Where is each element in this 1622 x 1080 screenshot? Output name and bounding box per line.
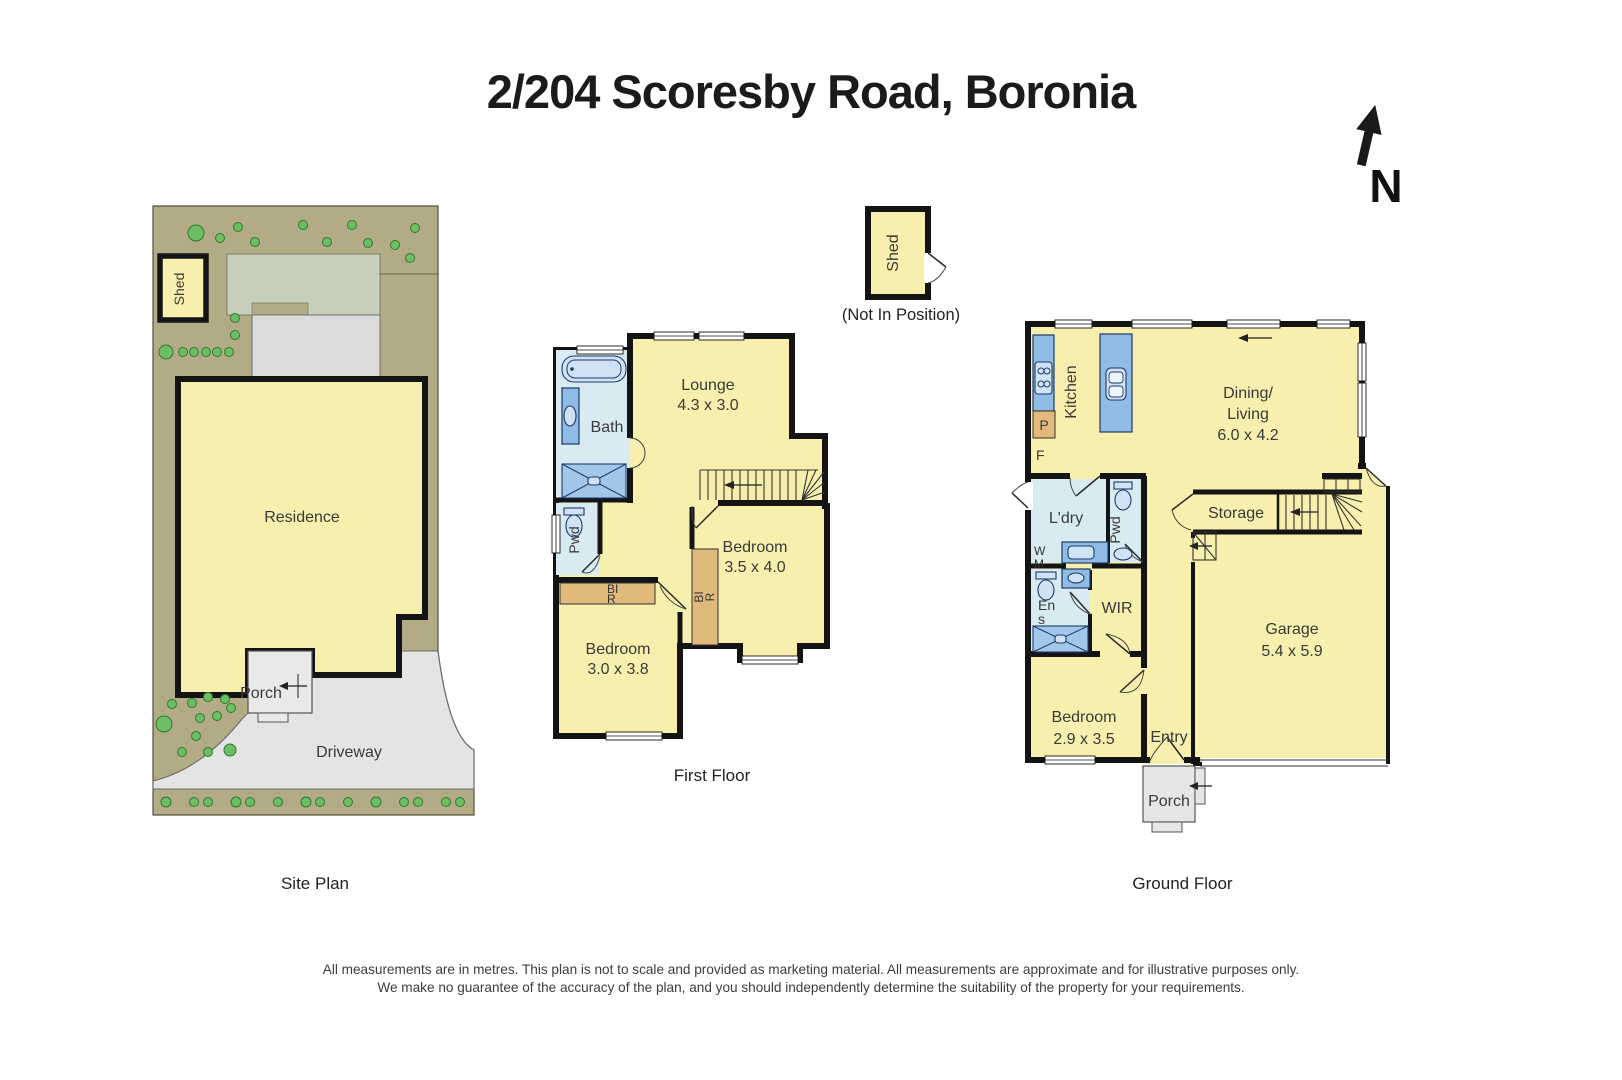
pantry-label: P <box>1039 417 1048 433</box>
disclaimer-line-2: We make no guarantee of the accuracy of … <box>0 979 1622 997</box>
site-porch-label: Porch <box>240 685 282 702</box>
dining-dim: 6.0 x 4.2 <box>1217 427 1278 444</box>
trough-icon <box>1068 546 1094 559</box>
bed-label-g: Bedroom <box>1052 709 1117 726</box>
bir-label-2: R <box>607 592 616 606</box>
shed-note: (Not In Position) <box>806 306 996 325</box>
driveway-label: Driveway <box>316 744 382 761</box>
garage-label: Garage <box>1265 621 1318 638</box>
site-plan-caption: Site Plan <box>152 874 478 894</box>
lounge-dim: 4.3 x 3.0 <box>677 397 738 414</box>
island-bench <box>1100 334 1132 432</box>
wm-label-1: W <box>1034 544 1046 558</box>
ground-floor-plan: P F <box>1000 316 1400 836</box>
shower-icon <box>562 464 626 498</box>
north-arrow: N <box>1330 98 1410 213</box>
fridge-label: F <box>1036 447 1045 463</box>
lounge-label: Lounge <box>681 377 734 394</box>
garden-notch <box>252 303 308 316</box>
first-floor-plan: BI R BI R Bath Pwd L <box>550 330 840 750</box>
kitchen-bench <box>1033 335 1054 411</box>
site-shed-label: Shed <box>171 273 187 306</box>
north-arrow-icon <box>1349 102 1388 168</box>
disclaimer: All measurements are in metres. This pla… <box>0 961 1622 997</box>
pwd-label: Pwd <box>566 526 582 553</box>
pantry: P <box>1033 411 1055 438</box>
ens-label-2: s <box>1038 611 1045 627</box>
bath-label: Bath <box>591 419 624 436</box>
garage-dim: 5.4 x 5.9 <box>1261 643 1322 660</box>
storage-label: Storage <box>1208 505 1264 522</box>
laundry-bench <box>1062 542 1108 563</box>
site-plan: Shed Residence Porch Driveway <box>152 205 478 825</box>
basin-icon <box>1114 548 1132 560</box>
vanity-icon <box>562 388 579 444</box>
wir-label: WIR <box>1101 600 1132 617</box>
bed2-dim: 3.0 x 3.8 <box>587 661 648 678</box>
shed-not-in-position: Shed <box>858 205 968 305</box>
garage-door <box>1200 758 1388 768</box>
pwd-label-g: Pwd <box>1107 516 1123 543</box>
first-floor-caption: First Floor <box>567 766 857 786</box>
dining-label-2: Living <box>1227 406 1269 423</box>
bed-dim-g: 2.9 x 3.5 <box>1053 731 1114 748</box>
shed-label: Shed <box>885 234 902 271</box>
disclaimer-line-1: All measurements are in metres. This pla… <box>0 961 1622 979</box>
entry-label: Entry <box>1150 729 1187 746</box>
bir2-label-2: R <box>703 592 717 601</box>
wm-label-2: M <box>1034 557 1044 571</box>
kitchen-label: Kitchen <box>1063 365 1080 418</box>
residence-outline <box>178 379 425 695</box>
floorplan-sheet: 2/204 Scoresby Road, Boronia N <box>0 0 1622 1080</box>
bed1-label: Bedroom <box>723 539 788 556</box>
laundry-label: L'dry <box>1049 510 1083 527</box>
cooktop-icon <box>1035 362 1052 394</box>
bed2-label: Bedroom <box>586 641 651 658</box>
bed1-dim: 3.5 x 4.0 <box>724 559 785 576</box>
bathtub-icon <box>562 356 626 382</box>
residence-label: Residence <box>264 509 340 526</box>
dining-label-1: Dining/ <box>1223 385 1273 402</box>
porch-label-g: Porch <box>1148 793 1190 810</box>
site-shed: Shed <box>160 256 206 320</box>
ground-floor-caption: Ground Floor <box>1010 874 1355 894</box>
north-label: N <box>1369 160 1402 212</box>
shed-door-gap <box>924 253 932 283</box>
